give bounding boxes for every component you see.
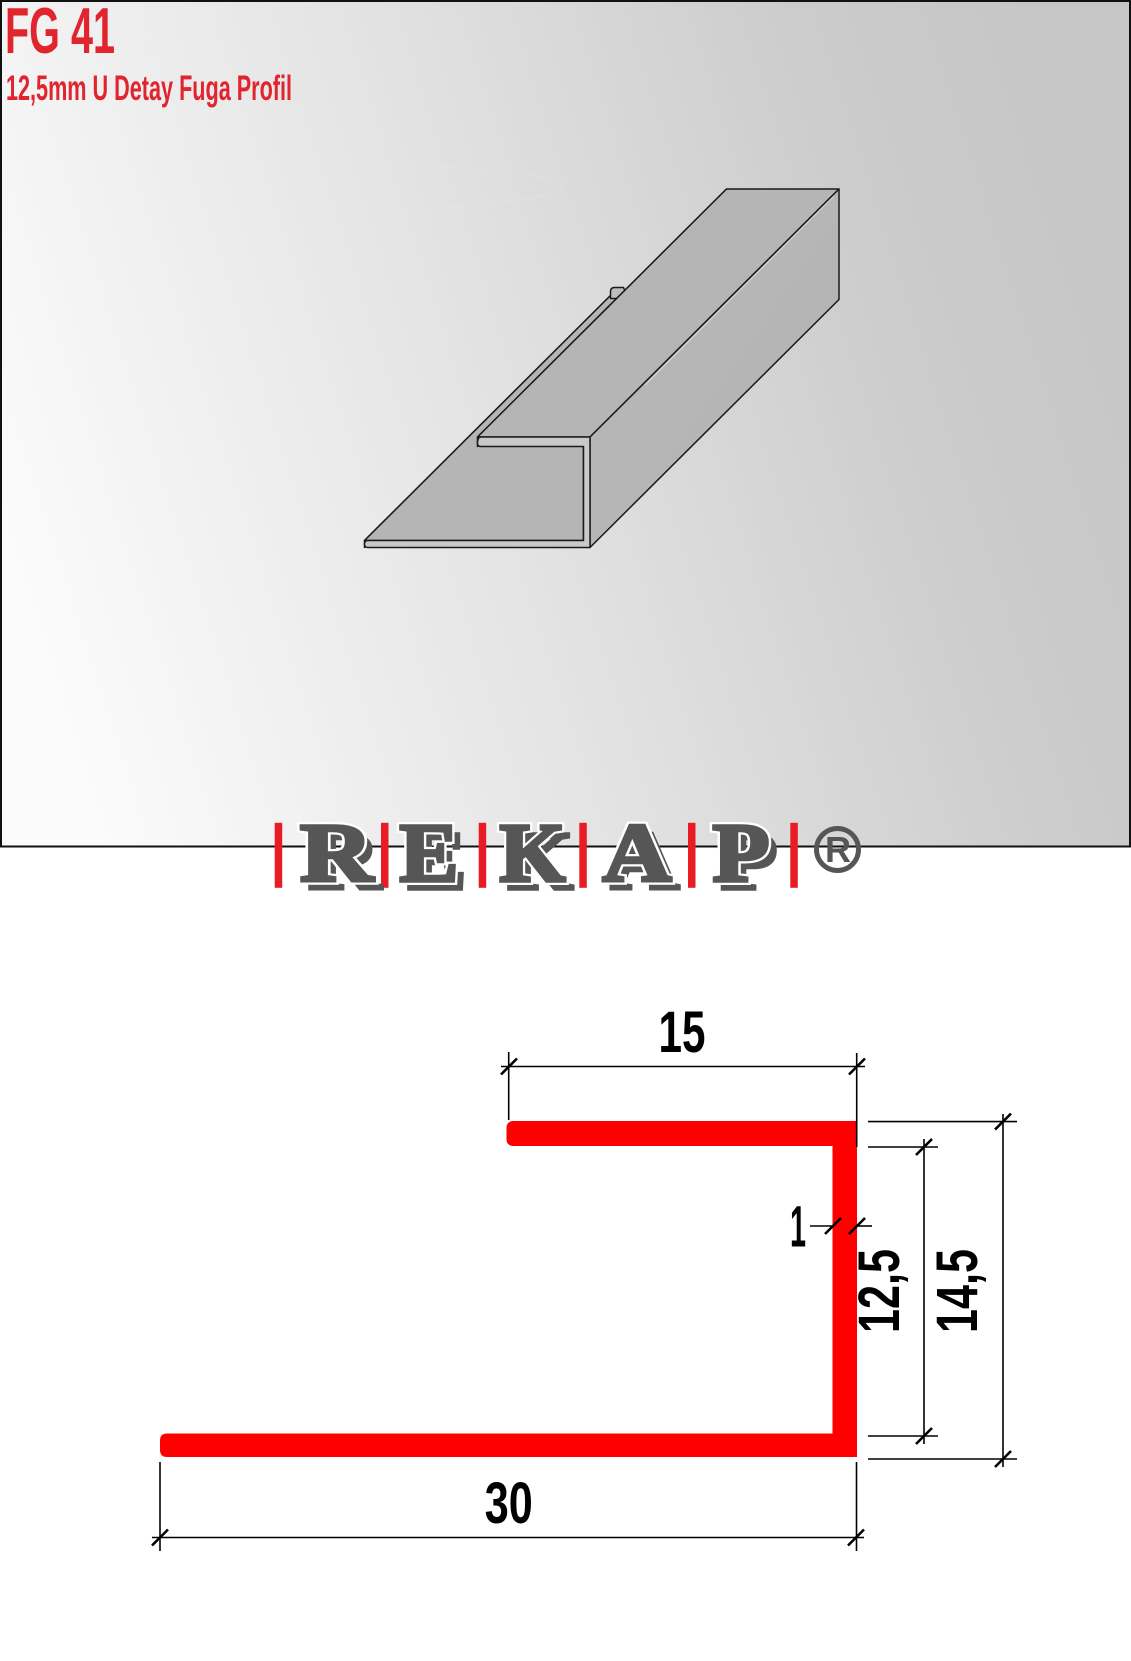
svg-text:E: E [400,807,459,900]
svg-text:P: P [713,807,770,900]
svg-text:K: K [500,807,566,900]
svg-text:30: 30 [485,1471,533,1536]
svg-text:R: R [825,829,851,870]
svg-text:12,5: 12,5 [847,1249,912,1333]
svg-text:A: A [603,807,672,900]
svg-text:1: 1 [790,1195,806,1260]
svg-text:15: 15 [659,1000,706,1065]
svg-text:FG 41: FG 41 [5,0,115,67]
svg-text:R: R [300,807,375,900]
svg-text:12,5mm U Detay Fuga Profil: 12,5mm U Detay Fuga Profil [6,69,292,108]
svg-text:14,5: 14,5 [925,1249,990,1333]
